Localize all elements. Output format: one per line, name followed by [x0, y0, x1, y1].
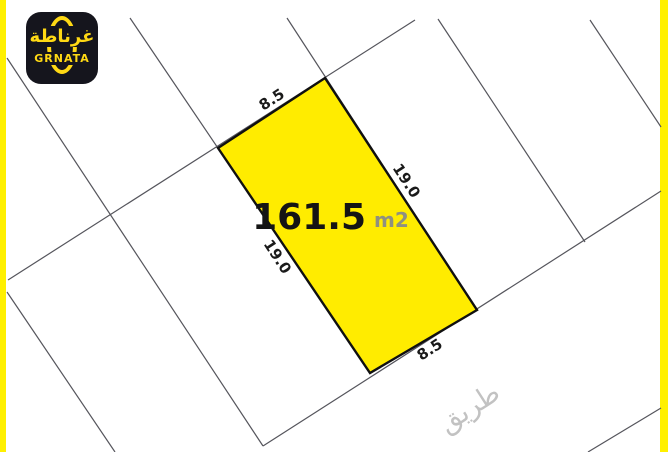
grnata-logo: غرناطة GRNATA	[26, 12, 98, 84]
parcel-area-value: 161.5	[252, 197, 366, 238]
logo-latin-wordmark: GRNATA	[26, 52, 98, 65]
left-frame-strip	[0, 0, 6, 452]
plot-survey-map: 8.5 19.0 19.0 8.5 161.5 m2 طريق	[0, 0, 668, 452]
right-frame-strip	[660, 0, 668, 452]
logo-arabic-wordmark: غرناطة	[26, 27, 98, 47]
parcel-area-unit: m2	[374, 208, 409, 232]
